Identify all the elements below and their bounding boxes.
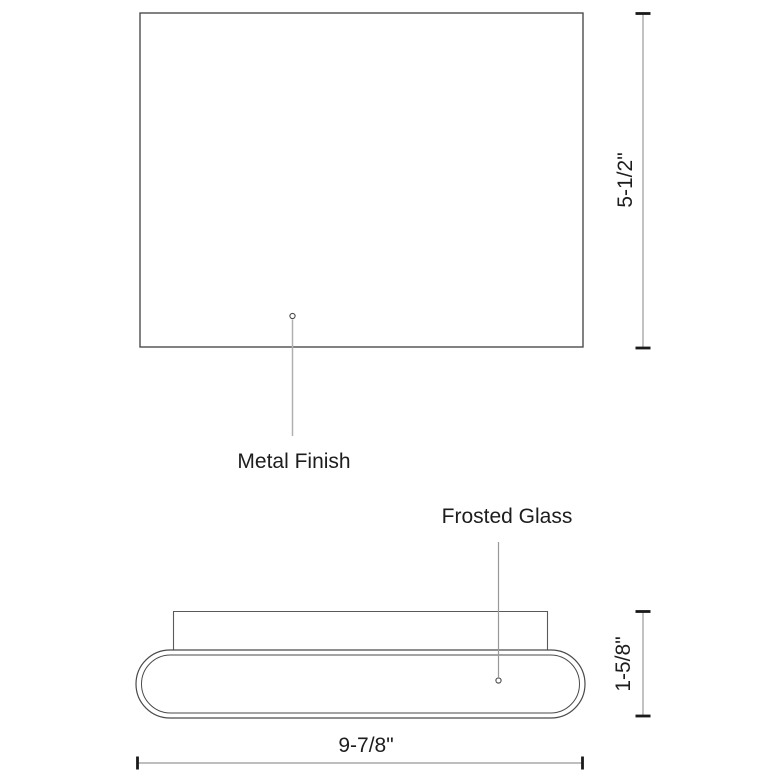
- frosted-glass-label: Frosted Glass: [442, 505, 573, 529]
- width-dimension-label: 9-7/8": [338, 734, 393, 758]
- metal-finish-marker-circle: [290, 313, 295, 318]
- mounting-plate-outline: [174, 612, 548, 651]
- frosted-glass-marker-circle: [496, 678, 501, 683]
- front-view-outline: [140, 13, 583, 347]
- spec-sheet-drawing: Metal Finish Frosted Glass 5-1/2" 1-5/8"…: [0, 0, 780, 780]
- metal-finish-label: Metal Finish: [237, 450, 350, 474]
- line-drawing: [0, 0, 780, 780]
- height-dimension-label: 5-1/2": [614, 152, 638, 207]
- glass-shade-outer-outline: [136, 650, 585, 718]
- depth-dimension-label: 1-5/8": [612, 636, 636, 691]
